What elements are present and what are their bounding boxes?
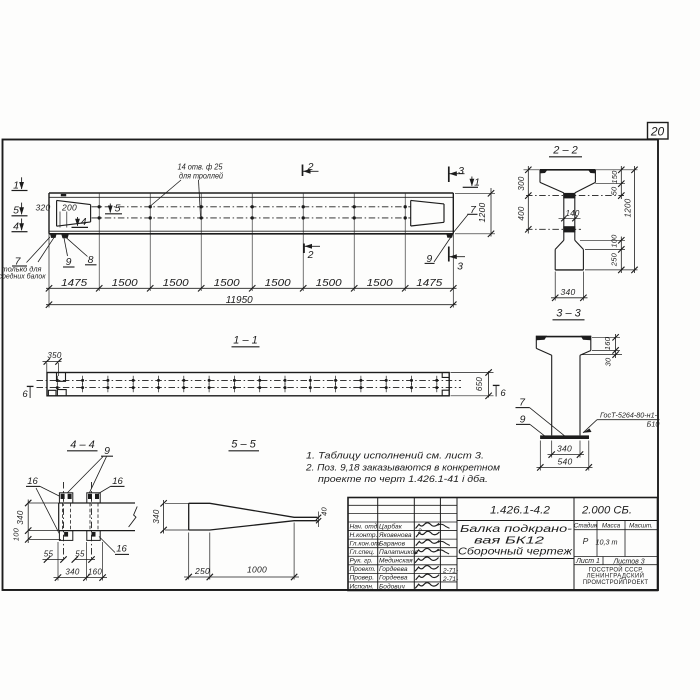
svg-text:Яковенова: Яковенова bbox=[378, 532, 412, 539]
svg-text:5 – 5: 5 – 5 bbox=[231, 439, 256, 451]
svg-text:340: 340 bbox=[65, 567, 79, 576]
svg-text:16: 16 bbox=[27, 476, 38, 487]
svg-text:9: 9 bbox=[520, 414, 526, 426]
svg-text:1.426.1-4.2: 1.426.1-4.2 bbox=[490, 505, 550, 517]
svg-text:Б10: Б10 bbox=[647, 420, 660, 429]
svg-text:Царбак: Царбак bbox=[379, 522, 403, 530]
svg-text:Сборочный чертеж: Сборочный чертеж bbox=[458, 546, 573, 558]
svg-text:2: 2 bbox=[307, 161, 314, 173]
svg-text:1200: 1200 bbox=[624, 198, 633, 217]
svg-text:1500: 1500 bbox=[112, 278, 139, 289]
svg-text:1200: 1200 bbox=[477, 202, 487, 222]
svg-text:Бодович: Бодович bbox=[379, 582, 405, 590]
svg-text:Р: Р bbox=[583, 536, 589, 546]
svg-text:160: 160 bbox=[603, 336, 612, 350]
svg-text:20: 20 bbox=[650, 125, 665, 139]
svg-text:2.000 СБ.: 2.000 СБ. bbox=[581, 505, 632, 517]
svg-text:650: 650 bbox=[475, 377, 484, 391]
svg-text:9: 9 bbox=[104, 445, 110, 457]
svg-text:Масса: Масса bbox=[602, 522, 621, 529]
svg-text:140: 140 bbox=[566, 209, 580, 218]
svg-text:4: 4 bbox=[13, 221, 19, 233]
svg-text:4 – 4: 4 – 4 bbox=[70, 439, 94, 451]
svg-text:только для: только для bbox=[2, 265, 42, 273]
svg-text:340: 340 bbox=[152, 509, 161, 523]
svg-text:1. Таблицу исполнений см. ли: 1. Таблицу исполнений см. лист 3. bbox=[306, 451, 484, 461]
svg-text:6: 6 bbox=[500, 388, 506, 399]
svg-text:1475: 1475 bbox=[61, 278, 88, 289]
svg-text:1500: 1500 bbox=[214, 278, 241, 289]
svg-text:1500: 1500 bbox=[316, 278, 343, 289]
svg-text:1500: 1500 bbox=[367, 278, 394, 289]
svg-text:100: 100 bbox=[12, 527, 21, 541]
svg-text:Рук. гр.: Рук. гр. bbox=[350, 558, 373, 565]
svg-text:2-71-: 2-71- bbox=[442, 568, 459, 575]
svg-text:30: 30 bbox=[604, 357, 613, 366]
svg-text:Палатников: Палатников bbox=[379, 549, 418, 556]
svg-text:ГОССТРОЙ СССР: ГОССТРОЙ СССР bbox=[589, 566, 643, 574]
svg-text:1000: 1000 bbox=[247, 565, 267, 575]
svg-text:для троллей: для троллей bbox=[179, 170, 223, 180]
svg-text:Нач. отд: Нач. отд bbox=[350, 522, 378, 530]
svg-text:2: 2 bbox=[417, 528, 422, 535]
svg-text:2: 2 bbox=[307, 249, 314, 261]
svg-text:1: 1 bbox=[13, 179, 19, 191]
svg-text:вая БК12: вая БК12 bbox=[474, 535, 544, 547]
svg-text:4: 4 bbox=[81, 216, 87, 228]
svg-text:ПРОМСТРОЙПРОЕКТ: ПРОМСТРОЙПРОЕКТ bbox=[583, 578, 649, 586]
svg-text:2. Поз. 9,18 заказываются в ко: 2. Поз. 9,18 заказываются в конкретном bbox=[305, 462, 501, 472]
svg-text:540: 540 bbox=[557, 456, 572, 466]
svg-text:Листов 3: Листов 3 bbox=[612, 558, 644, 565]
svg-text:340: 340 bbox=[16, 510, 25, 524]
svg-text:320: 320 bbox=[35, 203, 50, 213]
svg-text:250: 250 bbox=[610, 252, 619, 267]
svg-text:средних балок: средних балок bbox=[0, 273, 46, 281]
svg-text:Лист 1: Лист 1 bbox=[575, 558, 600, 565]
svg-text:3: 3 bbox=[458, 165, 464, 177]
svg-text:Н.контр.: Н.контр. bbox=[350, 532, 378, 539]
svg-text:Гордеева: Гордеева bbox=[379, 574, 408, 582]
svg-text:2 – 2: 2 – 2 bbox=[552, 145, 577, 157]
svg-text:Балка подкрано-: Балка подкрано- bbox=[460, 523, 573, 535]
svg-text:300: 300 bbox=[517, 176, 526, 190]
svg-text:Проект.: Проект. bbox=[350, 566, 376, 573]
svg-text:1 – 1: 1 – 1 bbox=[233, 335, 257, 347]
svg-text:16: 16 bbox=[112, 476, 123, 487]
svg-text:5: 5 bbox=[115, 203, 121, 215]
svg-text:2-71-: 2-71- bbox=[442, 576, 459, 583]
svg-text:5: 5 bbox=[13, 205, 19, 217]
svg-text:350: 350 bbox=[47, 351, 61, 360]
svg-text:400: 400 bbox=[517, 206, 526, 220]
svg-text:3 – 3: 3 – 3 bbox=[556, 308, 581, 320]
svg-text:55: 55 bbox=[44, 550, 54, 559]
svg-text:11950: 11950 bbox=[226, 294, 253, 306]
svg-text:Исполн.: Исполн. bbox=[350, 583, 375, 590]
svg-text:Баранов: Баранов bbox=[379, 540, 406, 547]
svg-text:9: 9 bbox=[66, 256, 72, 268]
svg-text:340: 340 bbox=[557, 444, 572, 454]
svg-text:160: 160 bbox=[88, 568, 102, 577]
svg-text:50: 50 bbox=[610, 186, 619, 195]
svg-text:340: 340 bbox=[560, 287, 575, 297]
svg-text:Стадия: Стадия bbox=[574, 522, 598, 529]
svg-text:Гл.кон.от: Гл.кон.от bbox=[350, 540, 381, 547]
svg-text:1500: 1500 bbox=[265, 278, 292, 289]
svg-text:200: 200 bbox=[61, 203, 77, 213]
svg-text:6: 6 bbox=[22, 389, 28, 400]
svg-text:150: 150 bbox=[610, 170, 619, 184]
svg-text:8: 8 bbox=[88, 254, 94, 266]
svg-text:40: 40 bbox=[320, 507, 329, 516]
svg-text:ЛЕНИНГРАДСКИЙ: ЛЕНИНГРАДСКИЙ bbox=[587, 572, 645, 580]
svg-text:Мединская: Мединская bbox=[379, 557, 413, 565]
svg-text:1: 1 bbox=[474, 176, 480, 188]
svg-text:Гордеева: Гордеева bbox=[379, 565, 408, 573]
svg-text:1475: 1475 bbox=[416, 278, 443, 289]
svg-text:16: 16 bbox=[116, 544, 127, 555]
svg-text:100: 100 bbox=[610, 234, 619, 248]
svg-text:проекте по черт 1.426.1-41 i: проекте по черт 1.426.1-41 i дба. bbox=[318, 474, 488, 484]
svg-text:Гл.спец.: Гл.спец. bbox=[350, 549, 375, 556]
svg-text:Масшт.: Масшт. bbox=[629, 522, 653, 529]
svg-text:10,3 т: 10,3 т bbox=[596, 538, 618, 547]
svg-text:ГосТ-5264-80-н1-: ГосТ-5264-80-н1- bbox=[600, 410, 658, 419]
svg-text:Провер.: Провер. bbox=[350, 575, 375, 582]
svg-text:1500: 1500 bbox=[163, 278, 190, 289]
svg-text:250: 250 bbox=[194, 566, 210, 576]
svg-text:55: 55 bbox=[75, 550, 85, 559]
svg-text:3: 3 bbox=[457, 261, 463, 273]
